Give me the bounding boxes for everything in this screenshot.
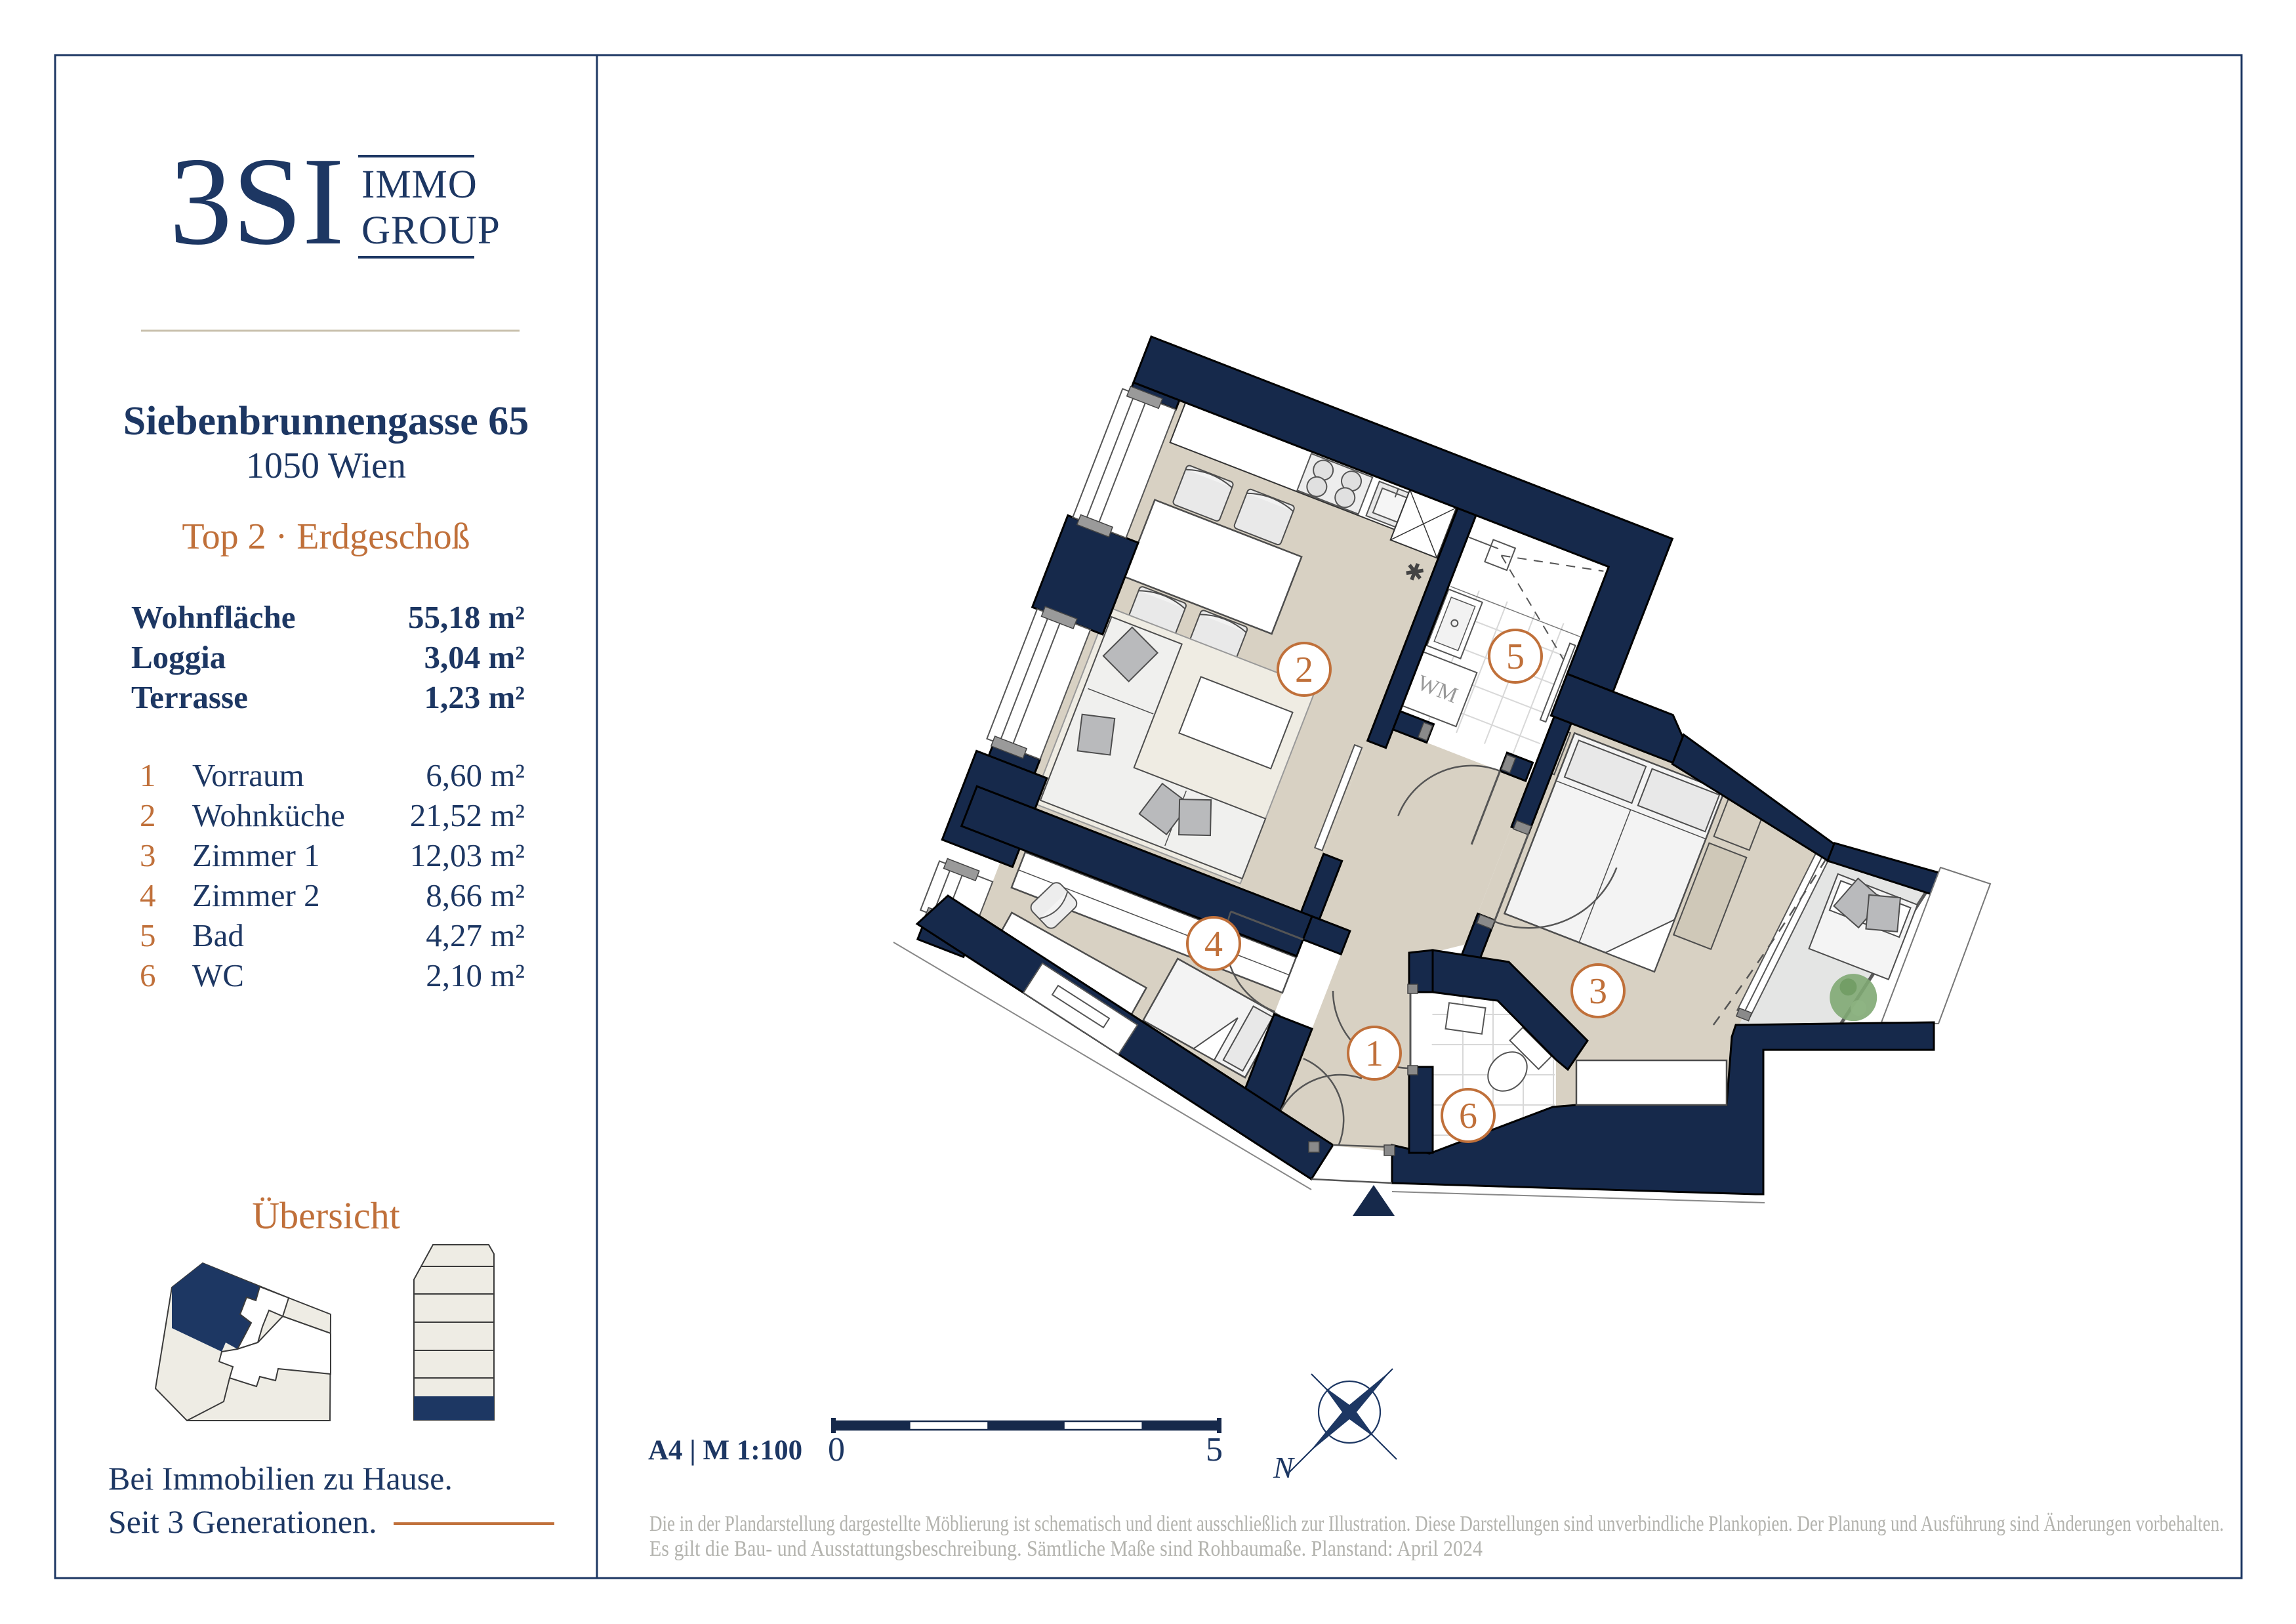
svg-text:N: N	[1273, 1451, 1295, 1484]
svg-text:5: 5	[1206, 1431, 1223, 1468]
svg-text:2,10 m²: 2,10 m²	[426, 957, 525, 993]
svg-text:6,60 m²: 6,60 m²	[426, 757, 525, 793]
svg-text:6: 6	[140, 957, 156, 993]
svg-text:3: 3	[140, 837, 156, 873]
svg-text:Top 2 · Erdgeschoß: Top 2 · Erdgeschoß	[182, 516, 470, 557]
svg-text:4,27 m²: 4,27 m²	[426, 917, 525, 953]
svg-text:1: 1	[140, 757, 156, 793]
svg-text:Es gilt die Bau- und Ausstattu: Es gilt die Bau- und Ausstattungsbeschre…	[649, 1537, 1483, 1561]
svg-text:4: 4	[140, 877, 156, 913]
svg-text:6: 6	[1459, 1096, 1477, 1136]
svg-text:Zimmer 1: Zimmer 1	[192, 837, 320, 873]
svg-text:A4 | M 1:100: A4 | M 1:100	[648, 1435, 802, 1466]
svg-text:Bei Immobilien zu Hause.: Bei Immobilien zu Hause.	[108, 1460, 453, 1497]
svg-text:WC: WC	[192, 957, 244, 993]
svg-text:IMMO: IMMO	[361, 163, 478, 207]
svg-text:3,04 m²: 3,04 m²	[424, 639, 525, 675]
svg-text:2: 2	[1295, 650, 1313, 690]
svg-text:Übersicht: Übersicht	[252, 1194, 400, 1237]
svg-text:Vorraum: Vorraum	[192, 757, 304, 793]
svg-text:21,52 m²: 21,52 m²	[410, 797, 525, 833]
svg-text:Die in der Plandarstellung dar: Die in der Plandarstellung dargestellte …	[649, 1512, 2224, 1536]
svg-text:8,66 m²: 8,66 m²	[426, 877, 525, 913]
svg-text:Zimmer 2: Zimmer 2	[192, 877, 320, 913]
svg-text:GROUP: GROUP	[361, 209, 501, 253]
svg-text:Bad: Bad	[192, 917, 244, 953]
svg-text:2: 2	[140, 797, 156, 833]
svg-text:1,23 m²: 1,23 m²	[424, 679, 525, 715]
svg-text:Siebenbrunnengasse 65: Siebenbrunnengasse 65	[123, 399, 529, 444]
svg-text:12,03 m²: 12,03 m²	[410, 837, 525, 873]
svg-text:1050 Wien: 1050 Wien	[246, 446, 406, 486]
svg-text:Wohnküche: Wohnküche	[192, 797, 345, 833]
svg-text:Loggia: Loggia	[131, 639, 226, 675]
svg-text:Terrasse: Terrasse	[131, 679, 248, 715]
svg-text:5: 5	[140, 917, 156, 953]
svg-text:5: 5	[1506, 636, 1525, 677]
svg-text:3: 3	[1589, 971, 1607, 1012]
svg-text:0: 0	[828, 1431, 845, 1468]
svg-text:Wohnfläche: Wohnfläche	[131, 599, 295, 635]
svg-text:1: 1	[1365, 1033, 1384, 1074]
svg-text:3SI: 3SI	[169, 131, 344, 271]
svg-text:55,18 m²: 55,18 m²	[408, 599, 525, 635]
svg-text:4: 4	[1204, 924, 1223, 965]
svg-text:Seit 3 Generationen.: Seit 3 Generationen.	[108, 1503, 377, 1540]
